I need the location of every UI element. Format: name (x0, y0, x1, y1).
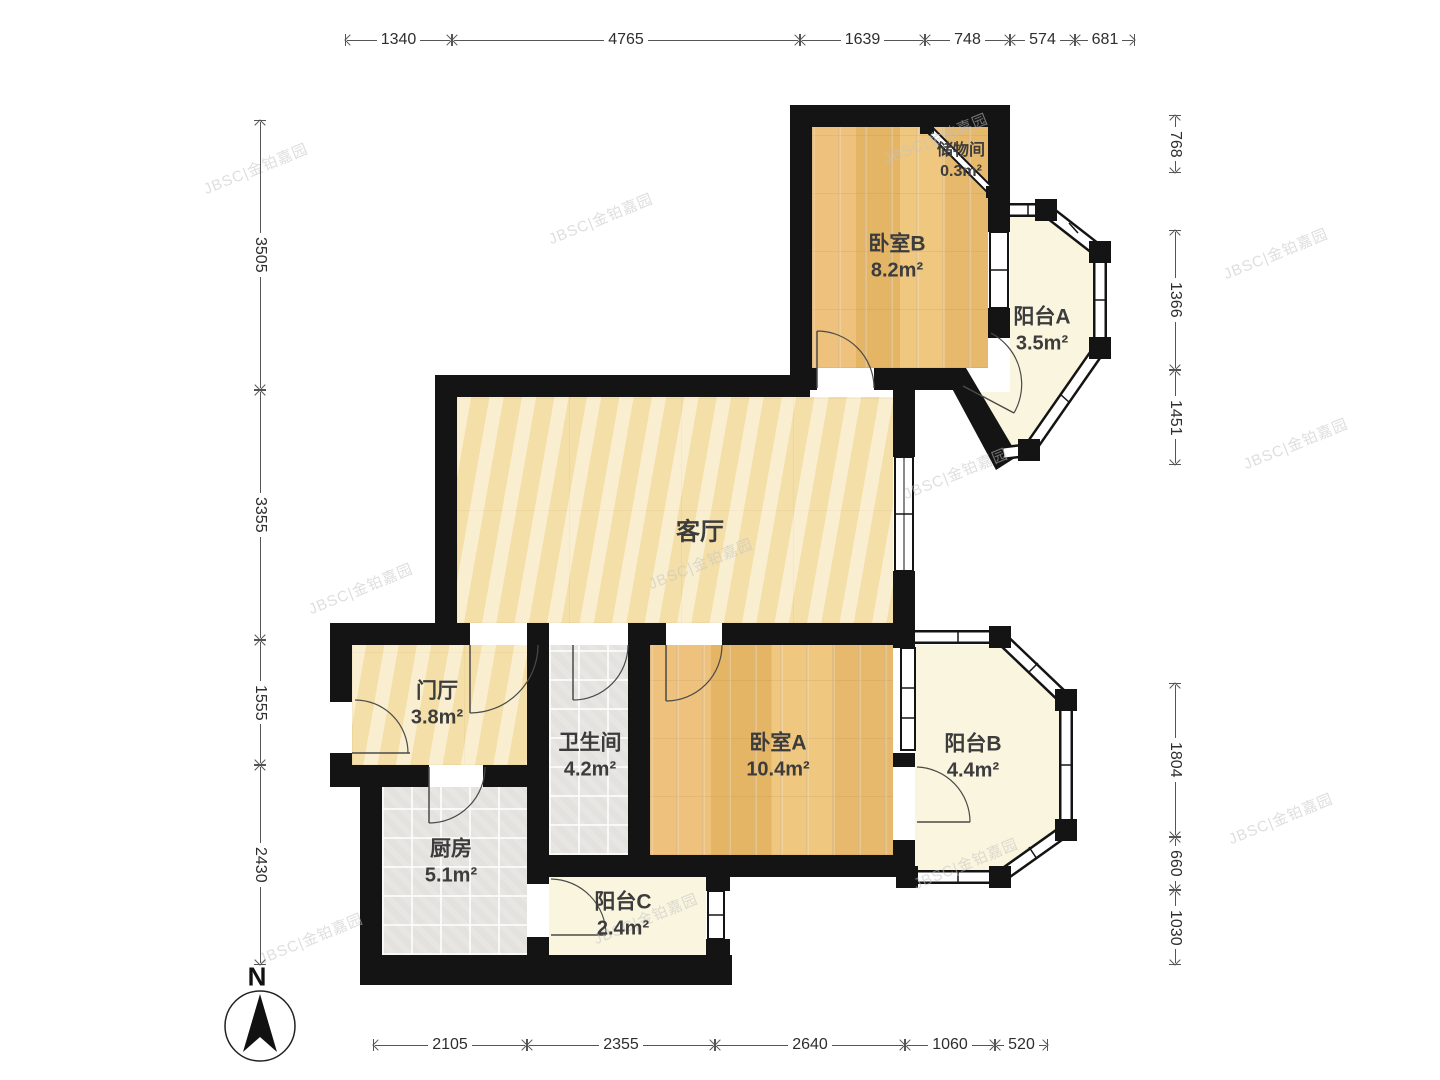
room-label-balcony-a: 阳台A 3.5m² (1013, 304, 1070, 357)
dim-left-2: 1555 (252, 640, 268, 765)
room-label-balcony-c: 阳台C 2.4m² (594, 889, 651, 942)
dim-bottom-4: 520 (995, 1037, 1048, 1053)
dim-top-1: 4765 (452, 32, 800, 48)
dim-bottom-2: 2640 (715, 1037, 905, 1053)
room-label-hall: 门厅 3.8m² (411, 678, 463, 731)
room-label-storage: 储物间 0.3m² (937, 140, 985, 182)
room-label-living: 客厅 (676, 519, 724, 546)
dim-top-3: 748 (925, 32, 1010, 48)
dim-right-2: 1451 (1167, 370, 1183, 465)
dim-top-5: 681 (1075, 32, 1135, 48)
room-label-bathroom: 卫生间 4.2m² (559, 730, 622, 783)
north-label: N (248, 962, 267, 993)
room-label-bedroom-b: 卧室B 8.2m² (868, 231, 925, 284)
dim-top-0: 1340 (345, 32, 452, 48)
dim-bottom-1: 2355 (527, 1037, 715, 1053)
room-label-bedroom-a: 卧室A 10.4m² (746, 730, 809, 783)
room-label-balcony-b: 阳台B 4.4m² (944, 731, 1001, 784)
dim-top-4: 574 (1010, 32, 1075, 48)
dim-bottom-3: 1060 (905, 1037, 995, 1053)
dim-left-3: 2430 (252, 765, 268, 965)
dim-right-3: 1804 (1167, 683, 1183, 837)
floorplan-page: 客厅 卧室B 8.2m² 储物间 0.3m² 阳台A 3.5m² 门厅 3.8m… (0, 0, 1440, 1080)
north-compass-icon (225, 991, 295, 1061)
room-label-kitchen: 厨房 5.1m² (425, 836, 477, 889)
dim-bottom-0: 2105 (373, 1037, 527, 1053)
dim-right-4: 660 (1167, 837, 1183, 890)
dim-right-5: 1030 (1167, 890, 1183, 965)
dim-left-1: 3355 (252, 390, 268, 640)
dim-left-0: 3505 (252, 120, 268, 390)
dim-right-0: 768 (1167, 115, 1183, 173)
dim-top-2: 1639 (800, 32, 925, 48)
dim-right-1: 1366 (1167, 230, 1183, 370)
